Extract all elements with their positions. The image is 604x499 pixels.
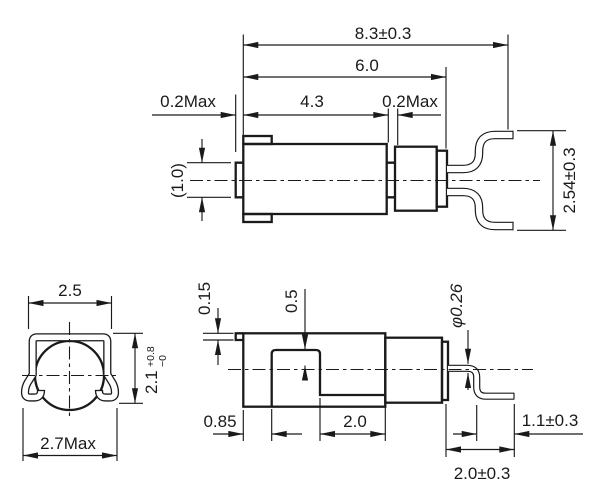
bottom-view-window-contour xyxy=(272,350,386,407)
dim-label-clip-height-group: 2.1 +0.8 −0 xyxy=(142,346,169,394)
dim-label-lead-pitch: 2.54±0.3 xyxy=(560,147,579,213)
dim-label-shaft-diameter: (1.0) xyxy=(168,163,187,198)
dim-label-clip-height: 2.1 xyxy=(142,370,161,394)
bottom-view: 0.15 0.5 0.85 2.0 φ0.26 1.1±0.3 2.0±0.3 xyxy=(195,282,583,483)
side-view-bottom-tab xyxy=(243,214,271,222)
dim-label-left-protrusion: 0.2Max xyxy=(160,92,216,111)
dim-label-seam-thickness: 0.15 xyxy=(195,282,214,315)
side-view-end-cap xyxy=(437,151,447,207)
dim-label-left-offset: 0.85 xyxy=(203,412,236,431)
bottom-view-cap xyxy=(385,338,442,403)
side-view-body xyxy=(243,144,386,214)
dim-label-cap-gap: 0.2Max xyxy=(382,92,438,111)
side-view: 8.3±0.3 6.0 4.3 0.2Max 0.2Max (1.0) 2.54… xyxy=(152,24,579,230)
extension-lines xyxy=(236,35,508,153)
dim-label-lead-extension: 2.0±0.3 xyxy=(454,464,511,483)
dim-label-overall-width: 2.7Max xyxy=(40,434,96,453)
dim-label-window-offset: 0.5 xyxy=(282,289,301,313)
technical-drawing-page: 8.3±0.3 6.0 4.3 0.2Max 0.2Max (1.0) 2.54… xyxy=(0,0,604,499)
dim-label-cap-length: 6.0 xyxy=(355,56,379,75)
bottom-view-end-cap xyxy=(442,342,448,400)
dim-label-lead-diameter: φ0.26 xyxy=(447,283,466,328)
front-view: 2.5 2.1 +0.8 −0 2.7Max xyxy=(22,281,169,461)
dim-label-overall-length: 8.3±0.3 xyxy=(355,24,412,43)
dim-label-clip-height-tol-minus: −0 xyxy=(157,355,169,367)
technical-drawing-canvas: 8.3±0.3 6.0 4.3 0.2Max 0.2Max (1.0) 2.54… xyxy=(0,0,604,499)
side-view-top-tab xyxy=(243,136,271,144)
dim-label-window-length: 2.0 xyxy=(343,412,367,431)
bottom-view-lead xyxy=(448,368,514,396)
dim-label-lead-foot-length: 1.1±0.3 xyxy=(522,411,579,430)
dim-label-body-length: 4.3 xyxy=(300,92,324,111)
side-view-cap xyxy=(395,147,437,211)
dim-label-clip-height-tol-plus: +0.8 xyxy=(145,346,157,367)
dim-label-clip-width: 2.5 xyxy=(58,281,82,300)
